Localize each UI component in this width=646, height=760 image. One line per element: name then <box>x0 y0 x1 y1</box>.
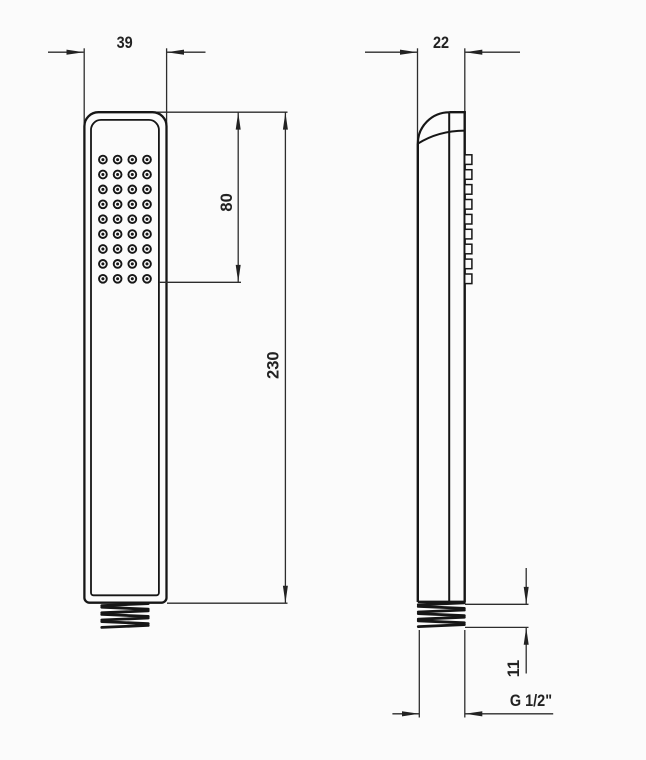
svg-text:230: 230 <box>263 351 282 378</box>
svg-text:G 1/2": G 1/2" <box>510 692 552 710</box>
svg-text:80: 80 <box>217 193 236 211</box>
svg-text:39: 39 <box>117 34 133 52</box>
svg-text:22: 22 <box>433 34 449 52</box>
svg-text:11: 11 <box>504 660 523 677</box>
